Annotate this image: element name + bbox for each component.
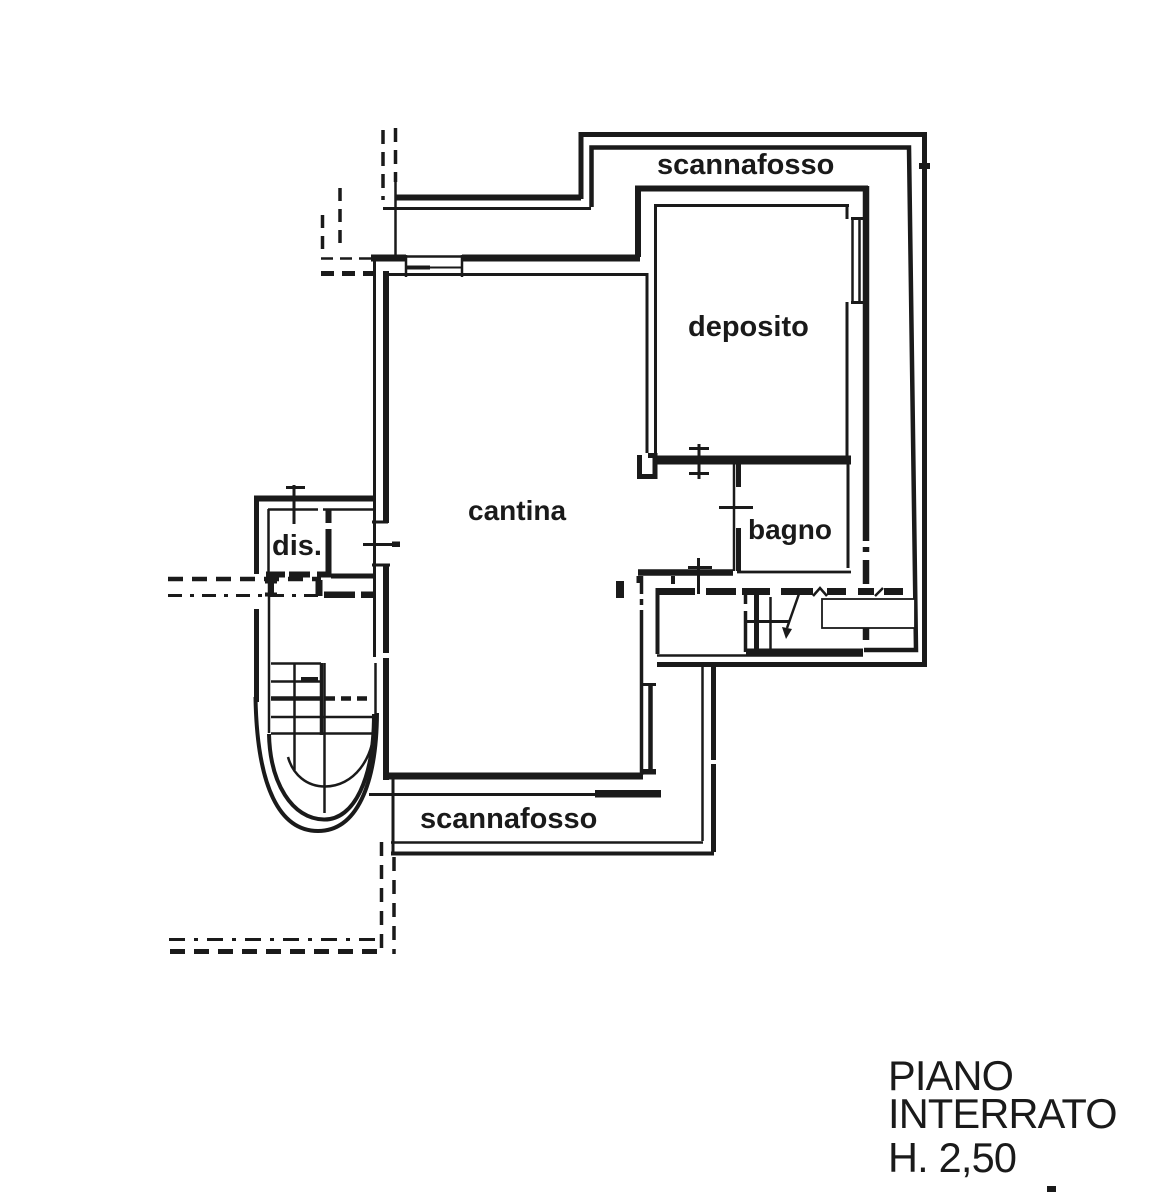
svg-text:cantina: cantina xyxy=(468,495,566,526)
svg-text:scannafosso: scannafosso xyxy=(657,149,834,181)
svg-text:deposito: deposito xyxy=(688,311,809,343)
svg-text:dis.: dis. xyxy=(272,530,322,562)
svg-text:H. 2,50: H. 2,50 xyxy=(888,1134,1016,1181)
svg-text:bagno: bagno xyxy=(748,514,832,545)
svg-text:INTERRATO: INTERRATO xyxy=(888,1090,1117,1137)
svg-text:scannafosso: scannafosso xyxy=(420,803,597,835)
